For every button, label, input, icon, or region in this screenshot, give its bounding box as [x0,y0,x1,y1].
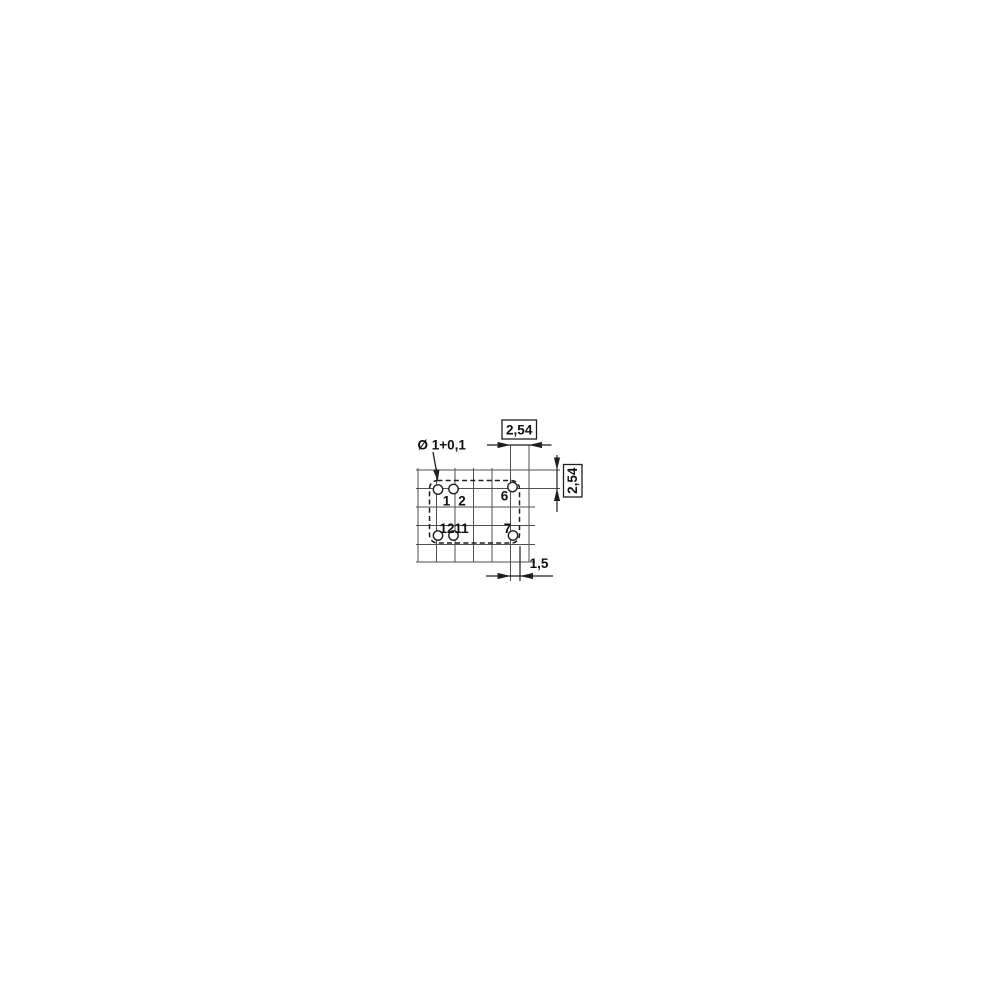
arrow-right-icon [498,442,511,448]
hole-diameter-value: Ø 1+0,1 [418,438,467,453]
vertical-pitch-value: 2,54 [565,467,580,494]
arrow-left-icon [520,573,533,579]
arrow-left-icon [529,442,542,448]
pin-number-label-1: 1 [443,494,451,509]
drill-hole-1 [433,485,442,494]
edge-offset-value: 1,5 [530,556,549,571]
leader-line [433,452,437,472]
arrow-right-icon [498,573,511,579]
arrow-up-icon [554,489,560,502]
pin-number-label-2: 2 [458,494,466,509]
pin-number-label-12: 12 [439,521,454,536]
drill-hole-6 [508,482,517,491]
pcb-drilling-diagram: 12612117 2,54 2,54 1,5 [0,0,1000,1000]
hole-diameter-callout: Ø 1+0,1 [418,438,467,482]
dimension-horizontal-pitch: 2,54 [487,420,552,448]
pin-number-label-7: 7 [504,521,512,536]
pin-number-label-6: 6 [501,489,509,504]
dimension-vertical-pitch: 2,54 [554,455,582,512]
arrow-down-icon [554,458,560,471]
drawing-canvas: 12612117 2,54 2,54 1,5 [0,0,1000,1000]
drill-hole-2 [449,484,458,493]
horizontal-pitch-value: 2,54 [506,422,533,437]
dimension-edge-offset: 1,5 [486,546,553,581]
pin-number-label-11: 11 [454,521,469,536]
pin-number-labels: 12612117 [439,489,511,537]
